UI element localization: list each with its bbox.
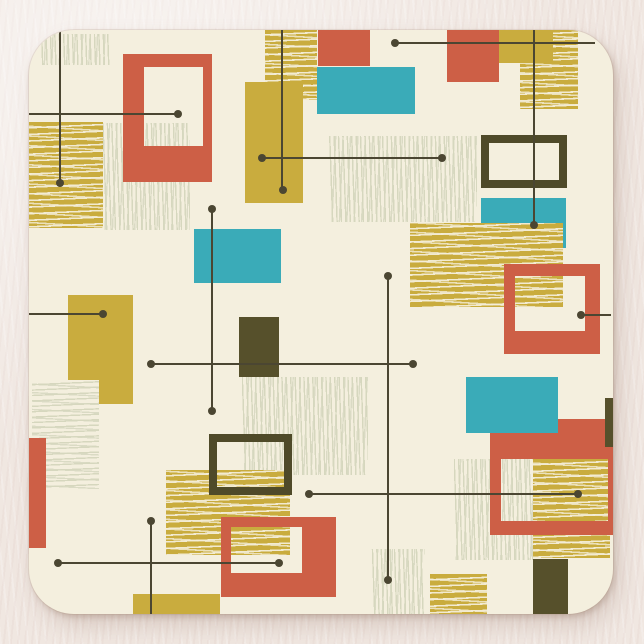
pattern-dot (99, 310, 107, 318)
line-h-lowermid (309, 493, 578, 495)
pattern-dot (530, 221, 538, 229)
rect-mustard-bottomleft (133, 594, 220, 614)
hatch-light-rightmid (329, 136, 477, 222)
line-v-topleft (59, 31, 61, 183)
hatch-light-topleft-corner (39, 34, 110, 65)
rect-olive-center (239, 317, 279, 377)
rect-mustard-topright (499, 30, 553, 63)
coaster (29, 30, 613, 614)
pattern-dot (174, 110, 182, 118)
frame-red-bottomleft (221, 517, 336, 597)
pattern-dot (391, 39, 399, 47)
pattern-dot (438, 154, 446, 162)
rect-teal-midleft (194, 229, 281, 283)
pattern-dot (54, 559, 62, 567)
frame-olive-right (481, 135, 567, 188)
frame-red-right (504, 264, 600, 354)
line-h-left (29, 313, 103, 315)
rect-red-top-a (318, 30, 370, 66)
photo-background (0, 0, 644, 644)
pattern-dot (305, 490, 313, 498)
frame-red-bottomright (490, 419, 613, 535)
frame-red-topleft (123, 54, 212, 182)
pattern-dot (279, 186, 287, 194)
pattern-dot (574, 490, 582, 498)
line-v-topcenter (281, 30, 283, 190)
line-h-topleft (29, 113, 178, 115)
line-h-topright (395, 42, 595, 44)
rect-mustard-topcenter (245, 82, 303, 203)
pattern-dot (577, 311, 585, 319)
rect-olive-bottom (533, 559, 568, 614)
rect-teal-top (317, 67, 415, 114)
pattern-dot (384, 272, 392, 280)
hatch-mustard-left (29, 122, 103, 228)
frame-olive-center (209, 434, 292, 495)
pattern-dot (208, 407, 216, 415)
line-h-rightedge (581, 314, 611, 316)
line-v-center (211, 209, 213, 411)
line-h-bottomleft (58, 562, 279, 564)
rect-olive-rightedge (605, 398, 613, 447)
line-v-topright (533, 30, 535, 225)
line-v-bottomleft (150, 521, 152, 614)
rect-teal-bottomright (466, 377, 558, 433)
line-v-centerright (387, 276, 389, 580)
line-h-midtop (262, 157, 442, 159)
hatch-light-bottom (371, 549, 425, 614)
pattern-dot (275, 559, 283, 567)
rect-red-leftedge (29, 438, 46, 548)
line-h-center (151, 363, 413, 365)
pattern-dot (208, 205, 216, 213)
hatch-mustard-bottom (430, 574, 487, 614)
pattern-dot (56, 179, 64, 187)
pattern-dot (409, 360, 417, 368)
pattern-dot (258, 154, 266, 162)
pattern-dot (147, 360, 155, 368)
pattern-dot (384, 576, 392, 584)
rect-red-top-b (447, 30, 499, 82)
pattern-dot (147, 517, 155, 525)
